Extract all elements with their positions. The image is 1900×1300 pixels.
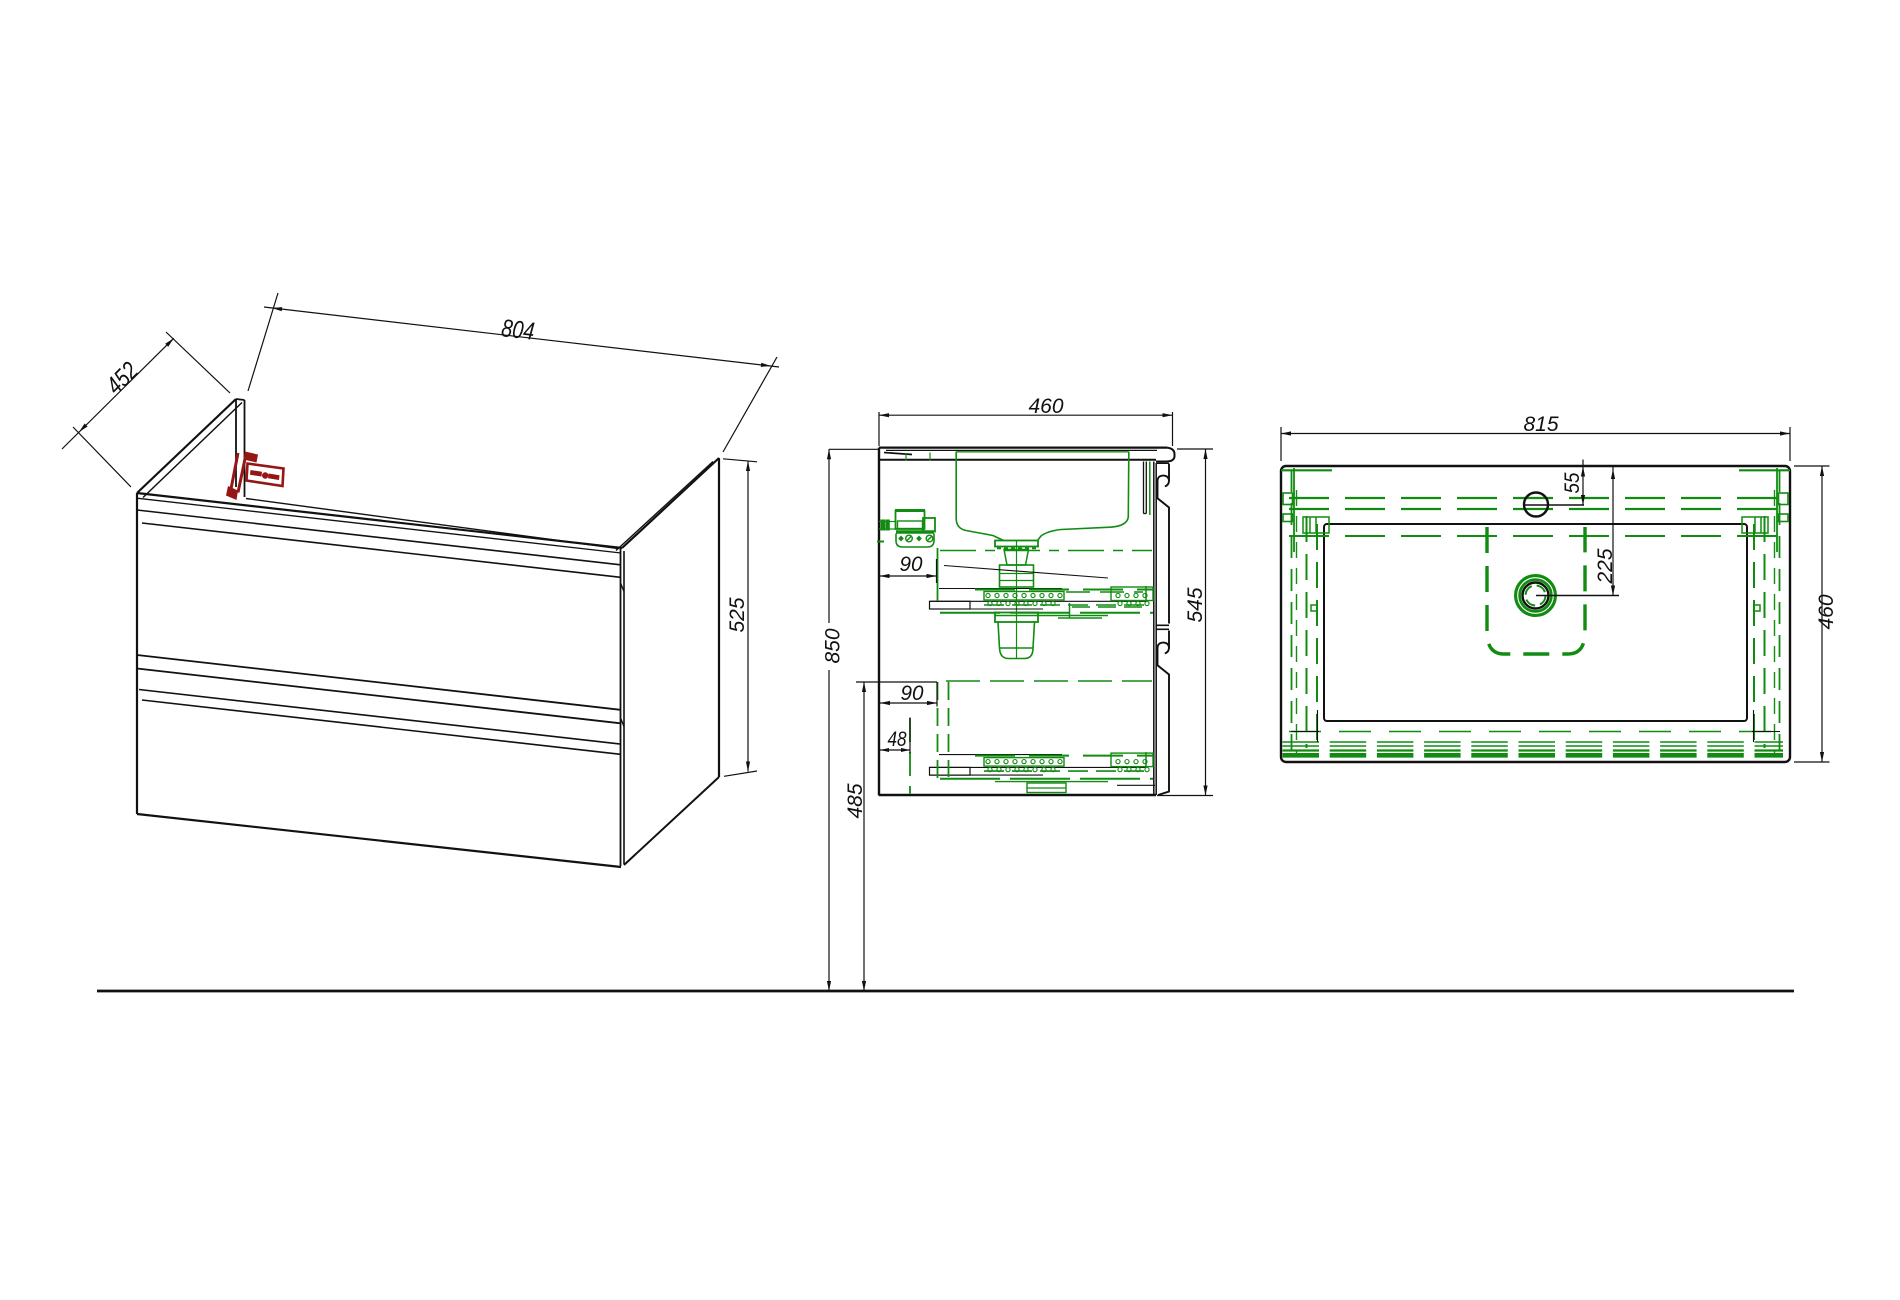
svg-text:804: 804 [500,314,536,346]
svg-text:485: 485 [844,783,867,818]
svg-text:545: 545 [1184,587,1207,622]
svg-text:815: 815 [1524,413,1559,436]
svg-text:90: 90 [901,682,924,705]
svg-text:90: 90 [900,553,923,576]
svg-text:225: 225 [1594,548,1617,584]
svg-text:850: 850 [822,628,845,663]
svg-text:48: 48 [888,728,907,751]
svg-text:460: 460 [1029,395,1064,418]
svg-text:55: 55 [1561,472,1584,493]
svg-text:525: 525 [726,597,749,632]
svg-text:460: 460 [1815,594,1838,629]
